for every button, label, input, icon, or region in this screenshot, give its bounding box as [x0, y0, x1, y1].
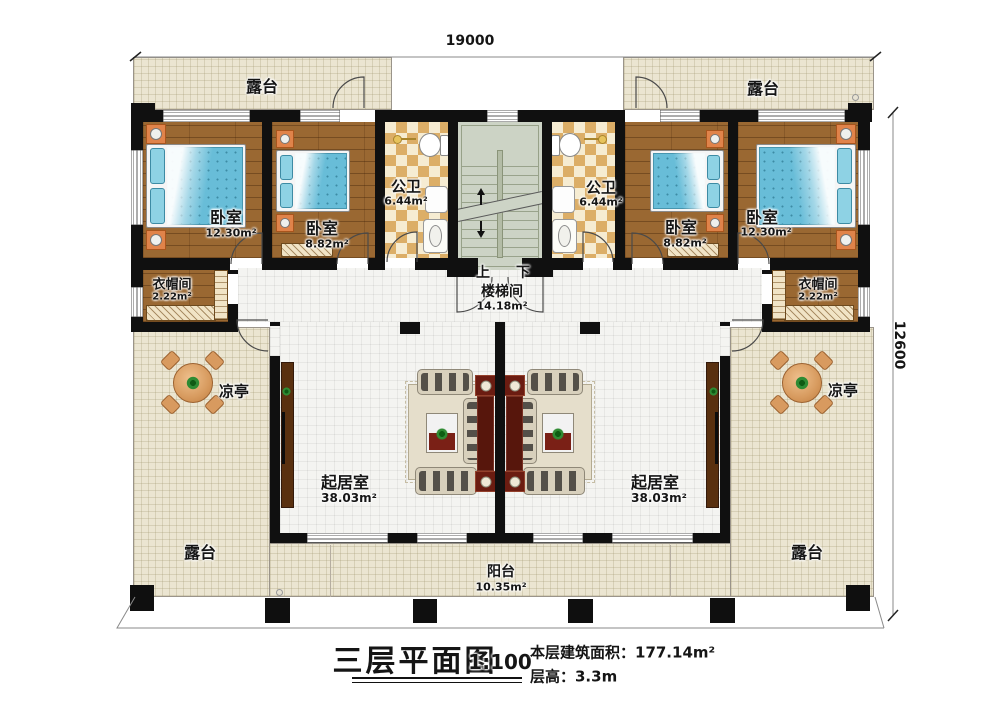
wall: [580, 322, 600, 334]
window: [758, 110, 845, 122]
wall: [228, 270, 238, 274]
window: [131, 150, 143, 225]
doorway-patch-right: [720, 326, 730, 356]
window: [487, 110, 518, 122]
room-label-bedroom-left-small: 卧室: [306, 215, 338, 239]
wall: [495, 322, 505, 543]
room-label-bedroom-right-large: 卧室: [746, 204, 778, 228]
room-area-living-left: 38.03m²: [321, 491, 377, 505]
wall: [375, 110, 487, 122]
stair-down-arrow-icon: [477, 231, 485, 238]
room-area-cloakroom-left: 2.22m²: [152, 292, 191, 303]
plant: [186, 376, 200, 390]
balcony-divider: [330, 545, 331, 597]
window: [131, 287, 143, 317]
dimension-width-label: 19000: [446, 33, 495, 49]
plant: [795, 376, 809, 390]
wall: [518, 110, 625, 122]
washing-machine: [552, 186, 575, 213]
sliding-door: [533, 533, 583, 543]
decor-stand: [504, 375, 525, 396]
pillow: [150, 148, 165, 184]
wall: [858, 110, 870, 150]
column: [265, 598, 290, 623]
stair-arrow-stem: [480, 221, 482, 231]
pillow: [150, 188, 165, 224]
window: [858, 287, 870, 317]
wall: [400, 322, 420, 334]
column: [568, 599, 593, 623]
wall: [542, 122, 552, 277]
room-label-terrace-bottom-left: 露台: [184, 539, 216, 563]
wall: [720, 322, 730, 326]
room-label-bedroom-left-large: 卧室: [210, 204, 242, 228]
column: [710, 598, 735, 623]
sink: [423, 219, 448, 253]
wall: [368, 258, 385, 270]
paper-holder-stem: [401, 138, 416, 140]
paper-holder-stem: [584, 138, 599, 140]
sink: [552, 219, 577, 253]
room-area-bathroom-right: 6.44m²: [579, 196, 622, 209]
window: [660, 110, 700, 122]
toilet: [419, 133, 441, 157]
room-label-living-left: 起居室: [321, 469, 369, 493]
decor-stand: [475, 471, 496, 492]
window: [163, 110, 250, 122]
pillow: [707, 183, 720, 208]
wall: [143, 258, 230, 270]
wardrobe: [784, 305, 854, 321]
room-area-stairwell: 14.18m²: [476, 300, 527, 313]
room-area-living-right: 38.03m²: [631, 491, 687, 505]
wall: [720, 356, 730, 543]
nightstand: [836, 230, 856, 250]
pillow: [837, 148, 852, 184]
room-label-bathroom-right: 公卫: [586, 177, 616, 198]
sliding-door: [307, 533, 388, 543]
nightstand: [276, 130, 294, 148]
wall: [858, 225, 870, 287]
room-label-terrace-top-right: 露台: [747, 75, 779, 99]
wall: [131, 110, 143, 150]
wall: [447, 258, 478, 277]
stair-arrow-stem: [480, 195, 482, 205]
room-label-living-right: 起居室: [631, 469, 679, 493]
sofa: [523, 467, 585, 495]
tv: [282, 412, 285, 464]
nightstand: [146, 124, 166, 144]
room-area-bedroom-right-small: 8.82m²: [663, 237, 706, 250]
sofa: [415, 467, 477, 495]
shelf: [772, 270, 786, 320]
plant: [282, 387, 291, 396]
room-label-bedroom-right-small: 卧室: [665, 214, 697, 238]
nightstand: [146, 230, 166, 250]
room-label-balcony: 阳台: [487, 561, 515, 581]
wall: [415, 258, 447, 270]
room-label-terrace-bottom-right: 露台: [791, 539, 823, 563]
wall: [270, 322, 280, 326]
title-underline: [352, 677, 522, 679]
wall: [375, 122, 385, 258]
wall: [613, 258, 632, 270]
wall: [615, 122, 625, 258]
stair-up-arrow-icon: [477, 188, 485, 195]
shelf: [214, 270, 228, 320]
nightstand: [276, 214, 294, 232]
nightstand: [836, 124, 856, 144]
room-area-balcony: 10.35m²: [475, 581, 526, 594]
sliding-door: [612, 533, 693, 543]
wall: [770, 258, 858, 270]
sofa: [527, 369, 583, 395]
nightstand: [706, 214, 724, 232]
wall: [728, 122, 738, 258]
tv: [715, 412, 718, 464]
wall: [583, 533, 612, 543]
bed: [650, 150, 724, 212]
room-area-bedroom-right-large: 12.30m²: [740, 226, 791, 239]
wall: [131, 322, 238, 332]
room-label-cloakroom-left: 衣帽间: [152, 274, 191, 293]
bed-sheet: [295, 153, 347, 209]
room-label-stairwell: 楼梯间: [481, 281, 523, 301]
column: [413, 599, 437, 623]
pillow: [837, 188, 852, 224]
toilet: [559, 133, 581, 157]
dimension-height-label: 12600: [891, 321, 907, 370]
coffee-table: [542, 413, 574, 453]
floor-drain-icon: [852, 94, 859, 101]
wardrobe: [146, 305, 216, 321]
balcony-divider: [670, 545, 671, 597]
paper-holder-icon: [598, 135, 607, 144]
sofa: [417, 369, 473, 395]
pillow: [280, 155, 293, 180]
toilet-tank: [551, 135, 560, 156]
wall: [448, 122, 458, 277]
wall: [762, 322, 869, 332]
sliding-door: [417, 533, 467, 543]
wall: [131, 225, 143, 287]
stair-up-label: 上: [476, 262, 490, 282]
column: [130, 585, 154, 611]
wall: [663, 258, 738, 270]
room-area-bedroom-left-large: 12.30m²: [205, 227, 256, 240]
doorway-patch-left: [270, 326, 280, 356]
bed-sheet: [653, 153, 705, 209]
wall: [553, 258, 583, 270]
room-area-bedroom-left-small: 8.82m²: [305, 238, 348, 251]
room-label-bathroom-left: 公卫: [391, 176, 421, 197]
stair-down-label: 下: [516, 262, 530, 282]
floor-plan-canvas: 露台 露台 卧室 12.30m² 卧室 8.82m² 公卫 6.44m² 公卫 …: [0, 0, 1000, 706]
wall: [270, 356, 280, 543]
room-label-terrace-top-left: 露台: [246, 73, 278, 97]
wall: [388, 533, 417, 543]
washing-machine: [425, 186, 448, 213]
tv-feature-wall: [477, 396, 494, 471]
pillow: [280, 183, 293, 208]
nightstand: [706, 130, 724, 148]
decor-stand: [504, 471, 525, 492]
wall: [262, 258, 337, 270]
wall: [270, 533, 307, 543]
tv-feature-wall: [506, 396, 523, 471]
window: [300, 110, 340, 122]
plant: [709, 387, 718, 396]
room-area-cloakroom-right: 2.22m²: [798, 292, 837, 303]
wall: [693, 533, 730, 543]
title-underline: [352, 682, 522, 683]
floor-height-text: 层高：3.3m: [530, 666, 617, 687]
floor-drain-icon: [276, 589, 283, 596]
room-label-cloakroom-right: 衣帽间: [798, 274, 837, 293]
wall: [262, 122, 272, 258]
wall: [250, 110, 300, 122]
bed: [276, 150, 350, 212]
room-area-bathroom-left: 6.44m²: [384, 195, 427, 208]
coffee-table: [426, 413, 458, 453]
room-label-pavilion-right: 凉亭: [828, 380, 858, 401]
pillow: [707, 155, 720, 180]
window: [858, 150, 870, 225]
decor-stand: [475, 375, 496, 396]
roof-edge-lines: [117, 597, 884, 628]
drawing-scale: 1:100: [468, 650, 532, 674]
wall: [762, 270, 772, 274]
wall: [700, 110, 758, 122]
floor-area-text: 本层建筑面积：177.14m²: [530, 642, 715, 663]
column: [846, 585, 870, 611]
room-label-pavilion-left: 凉亭: [219, 381, 249, 402]
wall: [467, 533, 533, 543]
